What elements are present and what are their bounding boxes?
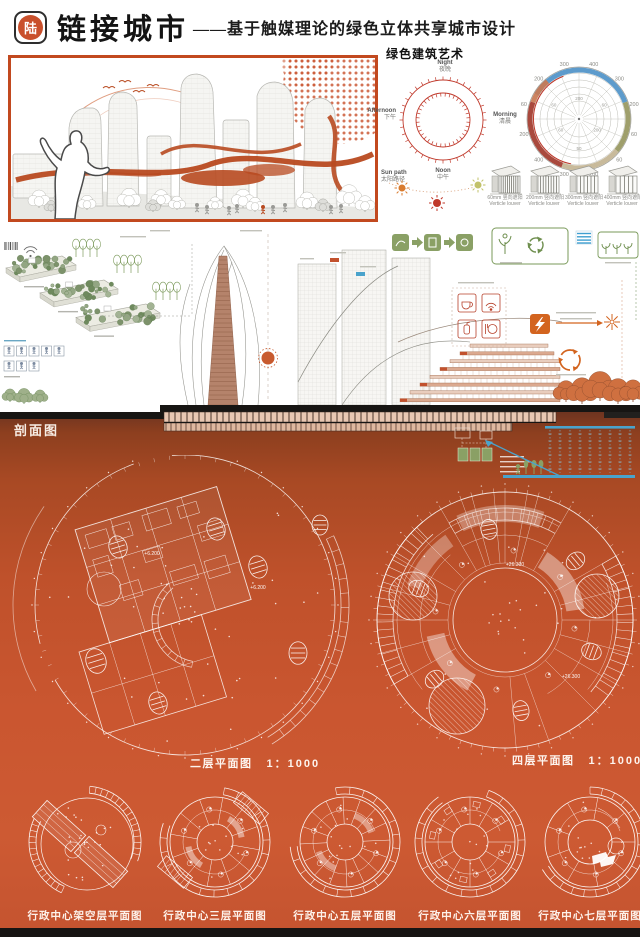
louver-item-400mm: 400mm 竖向遮阳 Verticle louver bbox=[604, 162, 640, 207]
mini-plan-label: 行政中心五层平面图 bbox=[280, 908, 410, 923]
svg-text:200: 200 bbox=[575, 96, 583, 101]
day-cycle-diagram bbox=[383, 58, 505, 178]
svg-text:60: 60 bbox=[602, 103, 608, 108]
svg-text:400: 400 bbox=[589, 62, 598, 68]
mini-plan-label: 行政中心架空层平面图 bbox=[20, 908, 150, 923]
clock-label-morning: Morning清晨 bbox=[488, 112, 522, 126]
bulb-sparkle-icon bbox=[604, 314, 620, 330]
activity-icon-grid bbox=[4, 340, 64, 377]
plan-label-level4: 四层平面图1：1000 bbox=[512, 752, 640, 768]
site-analysis-and-section bbox=[0, 222, 640, 434]
recycle-icon-orange bbox=[556, 349, 583, 373]
svg-text:200: 200 bbox=[593, 128, 601, 133]
louver-item-300mm: 300mm 竖向遮阳 Verticle louver bbox=[565, 162, 601, 207]
mini-plan-level5 bbox=[285, 785, 405, 903]
hero-render-frame bbox=[8, 55, 378, 222]
mini-plan-label: 行政中心六层平面图 bbox=[405, 908, 535, 923]
badge-number: 陆 bbox=[18, 15, 43, 40]
svg-text:60: 60 bbox=[558, 128, 564, 133]
green-site-diagrams bbox=[5, 239, 192, 337]
page-subtitle: ——基于触媒理论的绿色立体共享城市设计 bbox=[193, 15, 516, 39]
louver-icon bbox=[526, 162, 562, 195]
header: 陆 链接城市 ——基于触媒理论的绿色立体共享城市设计 bbox=[0, 0, 640, 54]
amenity-icons bbox=[452, 288, 506, 346]
mini-plan-label: 行政中心三层平面图 bbox=[150, 908, 280, 923]
clock-label-afternoon: Afternoon下午 bbox=[352, 108, 396, 122]
svg-text:200: 200 bbox=[534, 77, 543, 83]
svg-text:200: 200 bbox=[629, 102, 638, 108]
louver-icon bbox=[487, 162, 523, 195]
svg-text:300: 300 bbox=[560, 62, 569, 68]
section-title: 剖面图 bbox=[14, 420, 59, 439]
louver-studies: 60mm 竖向遮阳 Verticle louver 200mm 竖向遮阳 Ver… bbox=[487, 162, 640, 207]
svg-text:300: 300 bbox=[615, 77, 624, 83]
floor-plan-level2: +6.200+6.200 bbox=[0, 455, 360, 765]
svg-text:200: 200 bbox=[519, 132, 528, 138]
svg-text:+6.200: +6.200 bbox=[144, 551, 160, 557]
svg-text:50: 50 bbox=[576, 146, 582, 151]
svg-text:60: 60 bbox=[521, 102, 527, 108]
series-badge: 陆 bbox=[14, 11, 47, 44]
louver-icon bbox=[565, 162, 601, 195]
sun-icon bbox=[262, 352, 275, 365]
hero-render-illustration bbox=[11, 58, 375, 219]
plan-label-level2: 二层平面图1：1000 bbox=[190, 755, 320, 771]
extinguisher-icon bbox=[464, 325, 470, 334]
coffee-icon bbox=[462, 302, 473, 309]
svg-text:+26.300: +26.300 bbox=[506, 562, 524, 568]
solar-polar-chart: 6020030040030020060602003004002006020060… bbox=[518, 60, 640, 178]
food-icon bbox=[488, 325, 497, 334]
clock-label-night: Night夜晚 bbox=[428, 60, 462, 74]
louver-icon bbox=[604, 162, 640, 195]
bottom-black-bar bbox=[0, 928, 640, 937]
floor-plan-level4: +26.300+26.300 bbox=[365, 478, 640, 768]
louver-item-200mm: 200mm 竖向遮阳 Verticle louver bbox=[526, 162, 562, 207]
wifi-icon bbox=[24, 247, 37, 257]
page-title: 链接城市 bbox=[57, 6, 189, 48]
mini-plan-stilt-floor bbox=[25, 785, 145, 903]
mini-plan-level6 bbox=[410, 785, 530, 903]
mini-plan-level7 bbox=[530, 785, 640, 903]
svg-text:60: 60 bbox=[551, 103, 557, 108]
svg-text:60: 60 bbox=[631, 132, 637, 138]
mini-plan-label: 行政中心七层平面图 bbox=[525, 908, 640, 923]
louver-item-60mm: 60mm 竖向遮阳 Verticle louver bbox=[487, 162, 523, 207]
wifi-icon bbox=[486, 303, 496, 308]
svg-text:+6.200: +6.200 bbox=[250, 585, 266, 591]
mini-plan-level3 bbox=[155, 785, 275, 903]
poster: 陆 链接城市 ——基于触媒理论的绿色立体共享城市设计 bbox=[0, 0, 640, 937]
svg-text:+26.300: +26.300 bbox=[562, 674, 580, 680]
